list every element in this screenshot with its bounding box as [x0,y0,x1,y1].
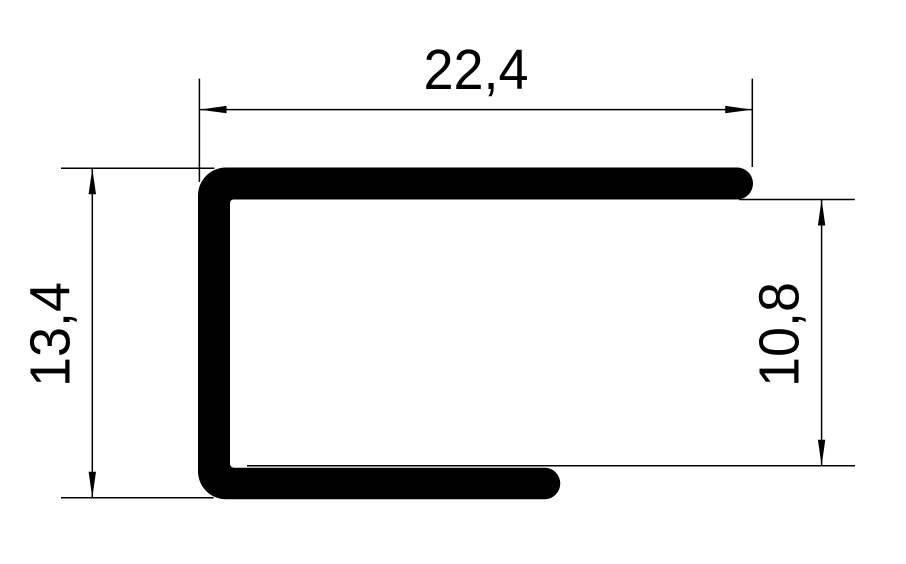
svg-text:13,4: 13,4 [19,282,82,387]
svg-text:10,8: 10,8 [747,282,810,387]
svg-text:22,4: 22,4 [423,38,528,101]
